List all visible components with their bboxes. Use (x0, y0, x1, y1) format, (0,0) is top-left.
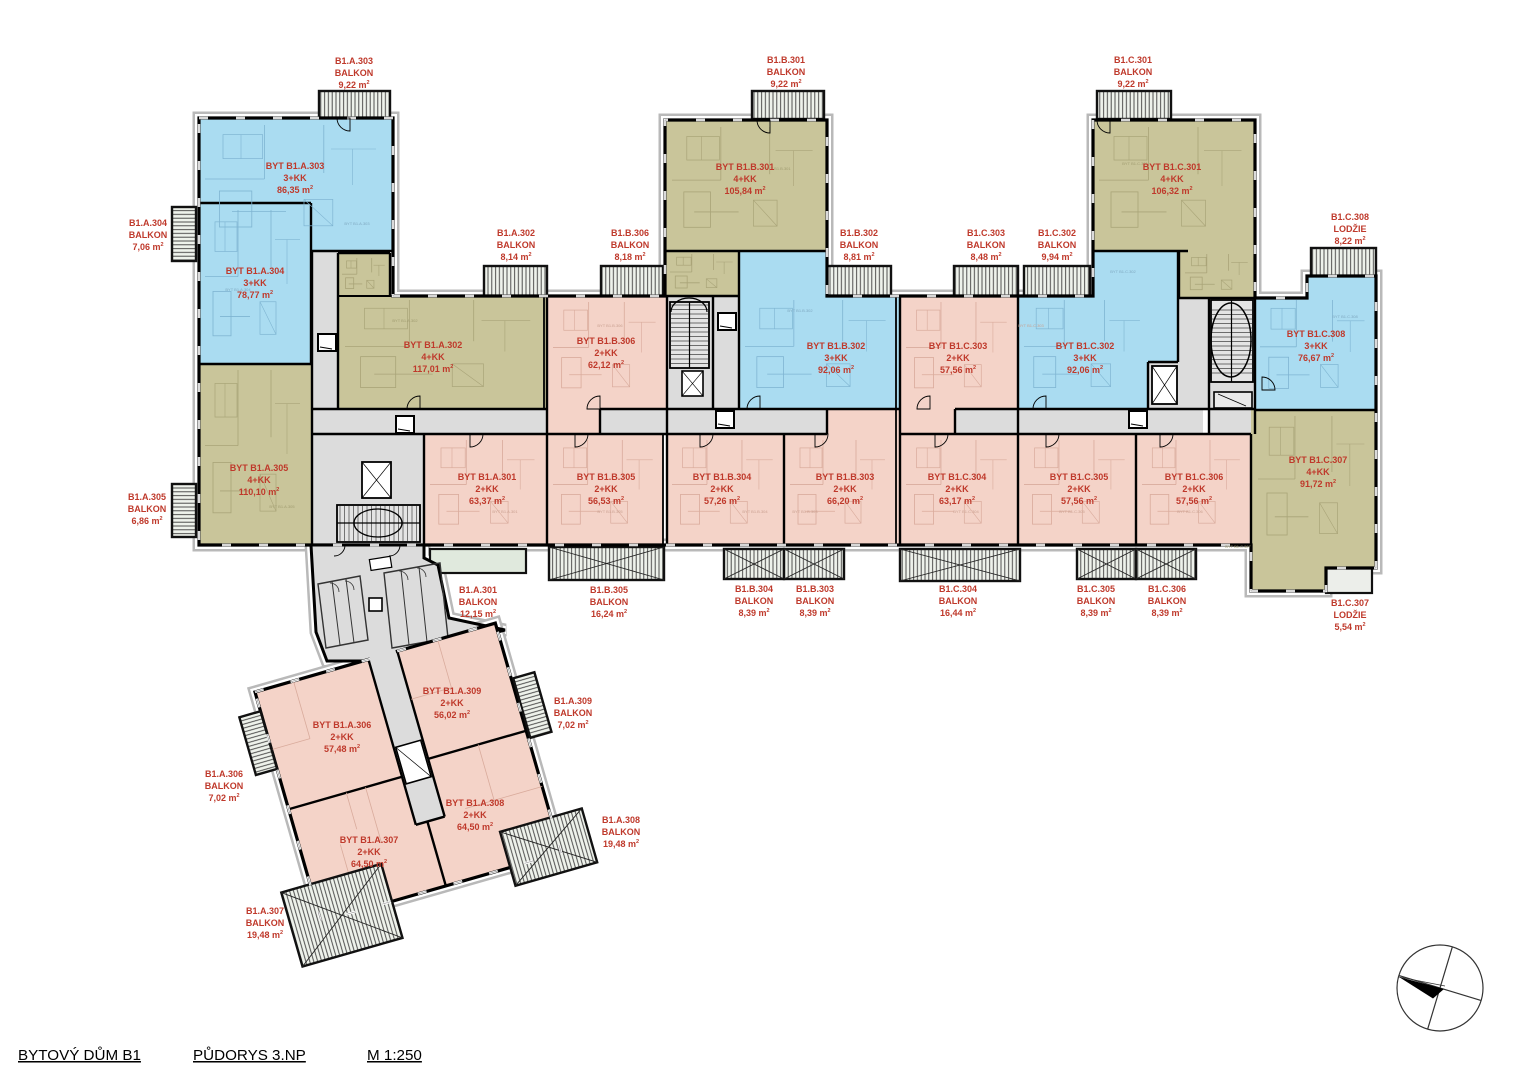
svg-text:86,35 m2: 86,35 m2 (277, 185, 313, 195)
svg-text:19,48 m2: 19,48 m2 (603, 839, 639, 849)
svg-text:8,81 m2: 8,81 m2 (843, 252, 874, 262)
svg-text:117,01 m2: 117,01 m2 (413, 364, 454, 374)
svg-text:BALKON: BALKON (796, 596, 835, 606)
svg-text:BYT B1.A.301: BYT B1.A.301 (492, 509, 518, 514)
svg-text:8,22 m2: 8,22 m2 (1334, 236, 1365, 246)
svg-text:3+KK: 3+KK (1073, 353, 1097, 363)
svg-text:8,39 m2: 8,39 m2 (1151, 608, 1182, 618)
svg-text:9,22 m2: 9,22 m2 (338, 80, 369, 90)
svg-text:2+KK: 2+KK (946, 353, 970, 363)
svg-text:BYT B1.A.309: BYT B1.A.309 (423, 686, 482, 696)
svg-text:4+KK: 4+KK (247, 475, 271, 485)
svg-text:B1.B.305: B1.B.305 (590, 585, 628, 595)
svg-text:BYT B1.A.303: BYT B1.A.303 (266, 161, 325, 171)
svg-text:BYT B1.B.306: BYT B1.B.306 (597, 323, 623, 328)
svg-text:BYT B1.C.302: BYT B1.C.302 (1056, 341, 1115, 351)
svg-text:BALKON: BALKON (967, 240, 1006, 250)
svg-text:BALKON: BALKON (497, 240, 536, 250)
svg-text:4+KK: 4+KK (421, 352, 445, 362)
svg-text:2+KK: 2+KK (357, 847, 381, 857)
svg-text:BALKON: BALKON (602, 827, 641, 837)
svg-text:BYT B1.C.302: BYT B1.C.302 (1110, 269, 1136, 274)
svg-text:BYT B1.C.306: BYT B1.C.306 (1165, 472, 1224, 482)
svg-text:BALKON: BALKON (128, 504, 167, 514)
svg-text:BYT B1.C.304: BYT B1.C.304 (928, 472, 987, 482)
svg-text:B1.C.302: B1.C.302 (1038, 228, 1076, 238)
svg-text:BALKON: BALKON (1114, 67, 1153, 77)
svg-text:9,22 m2: 9,22 m2 (770, 79, 801, 89)
svg-text:BYT B1.C.303: BYT B1.C.303 (1018, 323, 1044, 328)
svg-text:76,67 m2: 76,67 m2 (1298, 353, 1334, 363)
svg-text:BYT B1.B.304: BYT B1.B.304 (693, 472, 752, 482)
svg-text:BALKON: BALKON (459, 597, 498, 607)
svg-text:B1.C.303: B1.C.303 (967, 228, 1005, 238)
svg-text:LODŽIE: LODŽIE (1334, 609, 1367, 620)
svg-text:4+KK: 4+KK (1306, 467, 1330, 477)
svg-text:BYT B1.A.308: BYT B1.A.308 (446, 798, 505, 808)
svg-text:BALKON: BALKON (1038, 240, 1077, 250)
svg-text:BALKON: BALKON (129, 230, 168, 240)
svg-text:B1.C.307: B1.C.307 (1331, 598, 1369, 608)
svg-text:8,14 m2: 8,14 m2 (500, 252, 531, 262)
svg-text:9,22 m2: 9,22 m2 (1117, 79, 1148, 89)
svg-text:57,56 m2: 57,56 m2 (1061, 496, 1097, 506)
svg-text:B1.A.303: B1.A.303 (335, 56, 373, 66)
svg-text:BALKON: BALKON (246, 918, 285, 928)
svg-text:3+KK: 3+KK (243, 278, 267, 288)
svg-text:B1.C.308: B1.C.308 (1331, 212, 1369, 222)
svg-text:BYT B1.A.305: BYT B1.A.305 (230, 463, 289, 473)
svg-text:BYT B1.C.304: BYT B1.C.304 (953, 509, 979, 514)
svg-text:2+KK: 2+KK (594, 484, 618, 494)
svg-text:BYT B1.C.305: BYT B1.C.305 (1059, 509, 1085, 514)
svg-text:63,17 m2: 63,17 m2 (939, 496, 975, 506)
svg-text:3+KK: 3+KK (1304, 341, 1328, 351)
svg-text:4+KK: 4+KK (1160, 174, 1184, 184)
svg-text:9,94 m2: 9,94 m2 (1041, 252, 1072, 262)
svg-text:BYT B1.A.303: BYT B1.A.303 (344, 221, 370, 226)
svg-text:19,48 m2: 19,48 m2 (247, 930, 283, 940)
svg-text:62,12 m2: 62,12 m2 (588, 360, 624, 370)
svg-text:4+KK: 4+KK (733, 174, 757, 184)
svg-text:BYT B1.A.305: BYT B1.A.305 (269, 504, 295, 509)
svg-text:BYT B1.C.301: BYT B1.C.301 (1143, 162, 1202, 172)
svg-text:BYT B1.C.307: BYT B1.C.307 (1225, 544, 1251, 549)
svg-text:2+KK: 2+KK (475, 484, 499, 494)
svg-text:3+KK: 3+KK (283, 173, 307, 183)
svg-text:BYT B1.C.308: BYT B1.C.308 (1332, 314, 1358, 319)
svg-text:2+KK: 2+KK (1182, 484, 1206, 494)
svg-text:BALKON: BALKON (939, 596, 978, 606)
svg-text:2+KK: 2+KK (594, 348, 618, 358)
svg-text:B1.A.304: B1.A.304 (129, 218, 167, 228)
svg-text:BYT B1.B.301: BYT B1.B.301 (716, 162, 775, 172)
svg-text:BALKON: BALKON (735, 596, 774, 606)
svg-text:PŮDORYS 3.NP: PŮDORYS 3.NP (193, 1046, 306, 1064)
svg-text:BALKON: BALKON (590, 597, 629, 607)
svg-text:LODŽIE: LODŽIE (1334, 223, 1367, 234)
svg-text:B1.B.306: B1.B.306 (611, 228, 649, 238)
svg-text:8,39 m2: 8,39 m2 (1080, 608, 1111, 618)
svg-text:B1.B.304: B1.B.304 (735, 584, 773, 594)
svg-text:BYT B1.A.304: BYT B1.A.304 (226, 266, 285, 276)
svg-text:8,48 m2: 8,48 m2 (970, 252, 1001, 262)
svg-text:2+KK: 2+KK (330, 732, 354, 742)
svg-text:B1.B.302: B1.B.302 (840, 228, 878, 238)
svg-text:64,50 m2: 64,50 m2 (457, 822, 493, 832)
svg-text:BYT B1.C.307: BYT B1.C.307 (1289, 455, 1348, 465)
svg-text:66,20 m2: 66,20 m2 (827, 496, 863, 506)
svg-text:BYT B1.B.303: BYT B1.B.303 (792, 509, 818, 514)
svg-text:BALKON: BALKON (767, 67, 806, 77)
svg-text:57,56 m2: 57,56 m2 (1176, 496, 1212, 506)
svg-text:B1.A.307: B1.A.307 (246, 906, 284, 916)
svg-text:8,39 m2: 8,39 m2 (799, 608, 830, 618)
svg-text:BALKON: BALKON (1148, 596, 1187, 606)
svg-text:56,53 m2: 56,53 m2 (588, 496, 624, 506)
svg-text:105,84 m2: 105,84 m2 (724, 186, 765, 196)
svg-text:16,44 m2: 16,44 m2 (940, 608, 976, 618)
svg-text:BYT B1.A.302: BYT B1.A.302 (392, 318, 418, 323)
svg-text:BYT B1.C.305: BYT B1.C.305 (1050, 472, 1109, 482)
svg-text:92,06 m2: 92,06 m2 (1067, 365, 1103, 375)
svg-text:57,56 m2: 57,56 m2 (940, 365, 976, 375)
svg-text:BALKON: BALKON (335, 68, 374, 78)
svg-text:BYT B1.C.308: BYT B1.C.308 (1287, 329, 1346, 339)
svg-text:2+KK: 2+KK (440, 698, 464, 708)
svg-text:57,48 m2: 57,48 m2 (324, 744, 360, 754)
svg-text:BYT B1.A.306: BYT B1.A.306 (313, 720, 372, 730)
svg-text:B1.C.304: B1.C.304 (939, 584, 977, 594)
svg-text:BYT B1.A.302: BYT B1.A.302 (404, 340, 463, 350)
svg-text:BALKON: BALKON (205, 781, 244, 791)
svg-text:2+KK: 2+KK (945, 484, 969, 494)
svg-text:BYT B1.B.304: BYT B1.B.304 (742, 509, 768, 514)
svg-text:BYT B1.C.303: BYT B1.C.303 (929, 341, 988, 351)
svg-text:BYT B1.A.301: BYT B1.A.301 (458, 472, 517, 482)
svg-text:M 1:250: M 1:250 (367, 1047, 422, 1064)
svg-text:B1.B.303: B1.B.303 (796, 584, 834, 594)
svg-text:78,77 m2: 78,77 m2 (237, 290, 273, 300)
svg-text:2+KK: 2+KK (833, 484, 857, 494)
svg-text:BYTOVÝ DŮM B1: BYTOVÝ DŮM B1 (18, 1046, 141, 1064)
svg-text:BALKON: BALKON (840, 240, 879, 250)
svg-text:8,18 m2: 8,18 m2 (614, 252, 645, 262)
svg-text:BALKON: BALKON (611, 240, 650, 250)
svg-text:110,10 m2: 110,10 m2 (239, 487, 280, 497)
svg-text:B1.A.308: B1.A.308 (602, 815, 640, 825)
svg-text:BYT B1.B.306: BYT B1.B.306 (577, 336, 636, 346)
svg-text:6,86 m2: 6,86 m2 (131, 516, 162, 526)
svg-text:BALKON: BALKON (554, 708, 593, 718)
svg-text:BYT B1.B.305: BYT B1.B.305 (577, 472, 636, 482)
svg-text:B1.C.305: B1.C.305 (1077, 584, 1115, 594)
svg-text:2+KK: 2+KK (710, 484, 734, 494)
svg-text:63,37 m2: 63,37 m2 (469, 496, 505, 506)
svg-text:BYT B1.C.306: BYT B1.C.306 (1177, 509, 1203, 514)
svg-text:B1.A.302: B1.A.302 (497, 228, 535, 238)
svg-text:B1.A.309: B1.A.309 (554, 696, 592, 706)
svg-text:BYT B1.B.303: BYT B1.B.303 (816, 472, 875, 482)
svg-text:B1.C.301: B1.C.301 (1114, 55, 1152, 65)
svg-text:12,15 m2: 12,15 m2 (460, 609, 496, 619)
svg-text:BYT B1.A.307: BYT B1.A.307 (340, 835, 399, 845)
svg-text:57,26 m2: 57,26 m2 (704, 496, 740, 506)
svg-text:B1.B.301: B1.B.301 (767, 55, 805, 65)
svg-text:2+KK: 2+KK (1067, 484, 1091, 494)
svg-text:8,39 m2: 8,39 m2 (738, 608, 769, 618)
svg-text:64,50 m2: 64,50 m2 (351, 859, 387, 869)
svg-text:7,06 m2: 7,06 m2 (132, 242, 163, 252)
svg-text:56,02 m2: 56,02 m2 (434, 710, 470, 720)
svg-text:92,06 m2: 92,06 m2 (818, 365, 854, 375)
svg-text:BYT B1.B.302: BYT B1.B.302 (807, 341, 866, 351)
svg-text:BYT B1.B.302: BYT B1.B.302 (787, 308, 813, 313)
svg-text:91,72 m2: 91,72 m2 (1300, 479, 1336, 489)
svg-text:7,02 m2: 7,02 m2 (557, 720, 588, 730)
svg-text:B1.A.305: B1.A.305 (128, 492, 166, 502)
svg-text:106,32 m2: 106,32 m2 (1151, 186, 1192, 196)
svg-text:3+KK: 3+KK (824, 353, 848, 363)
svg-text:BYT B1.B.305: BYT B1.B.305 (597, 509, 623, 514)
svg-text:5,54 m2: 5,54 m2 (1334, 622, 1365, 632)
svg-text:B1.A.306: B1.A.306 (205, 769, 243, 779)
svg-text:16,24 m2: 16,24 m2 (591, 609, 627, 619)
svg-text:BALKON: BALKON (1077, 596, 1116, 606)
svg-text:B1.C.306: B1.C.306 (1148, 584, 1186, 594)
svg-text:7,02 m2: 7,02 m2 (208, 793, 239, 803)
svg-text:2+KK: 2+KK (463, 810, 487, 820)
svg-text:B1.A.301: B1.A.301 (459, 585, 497, 595)
